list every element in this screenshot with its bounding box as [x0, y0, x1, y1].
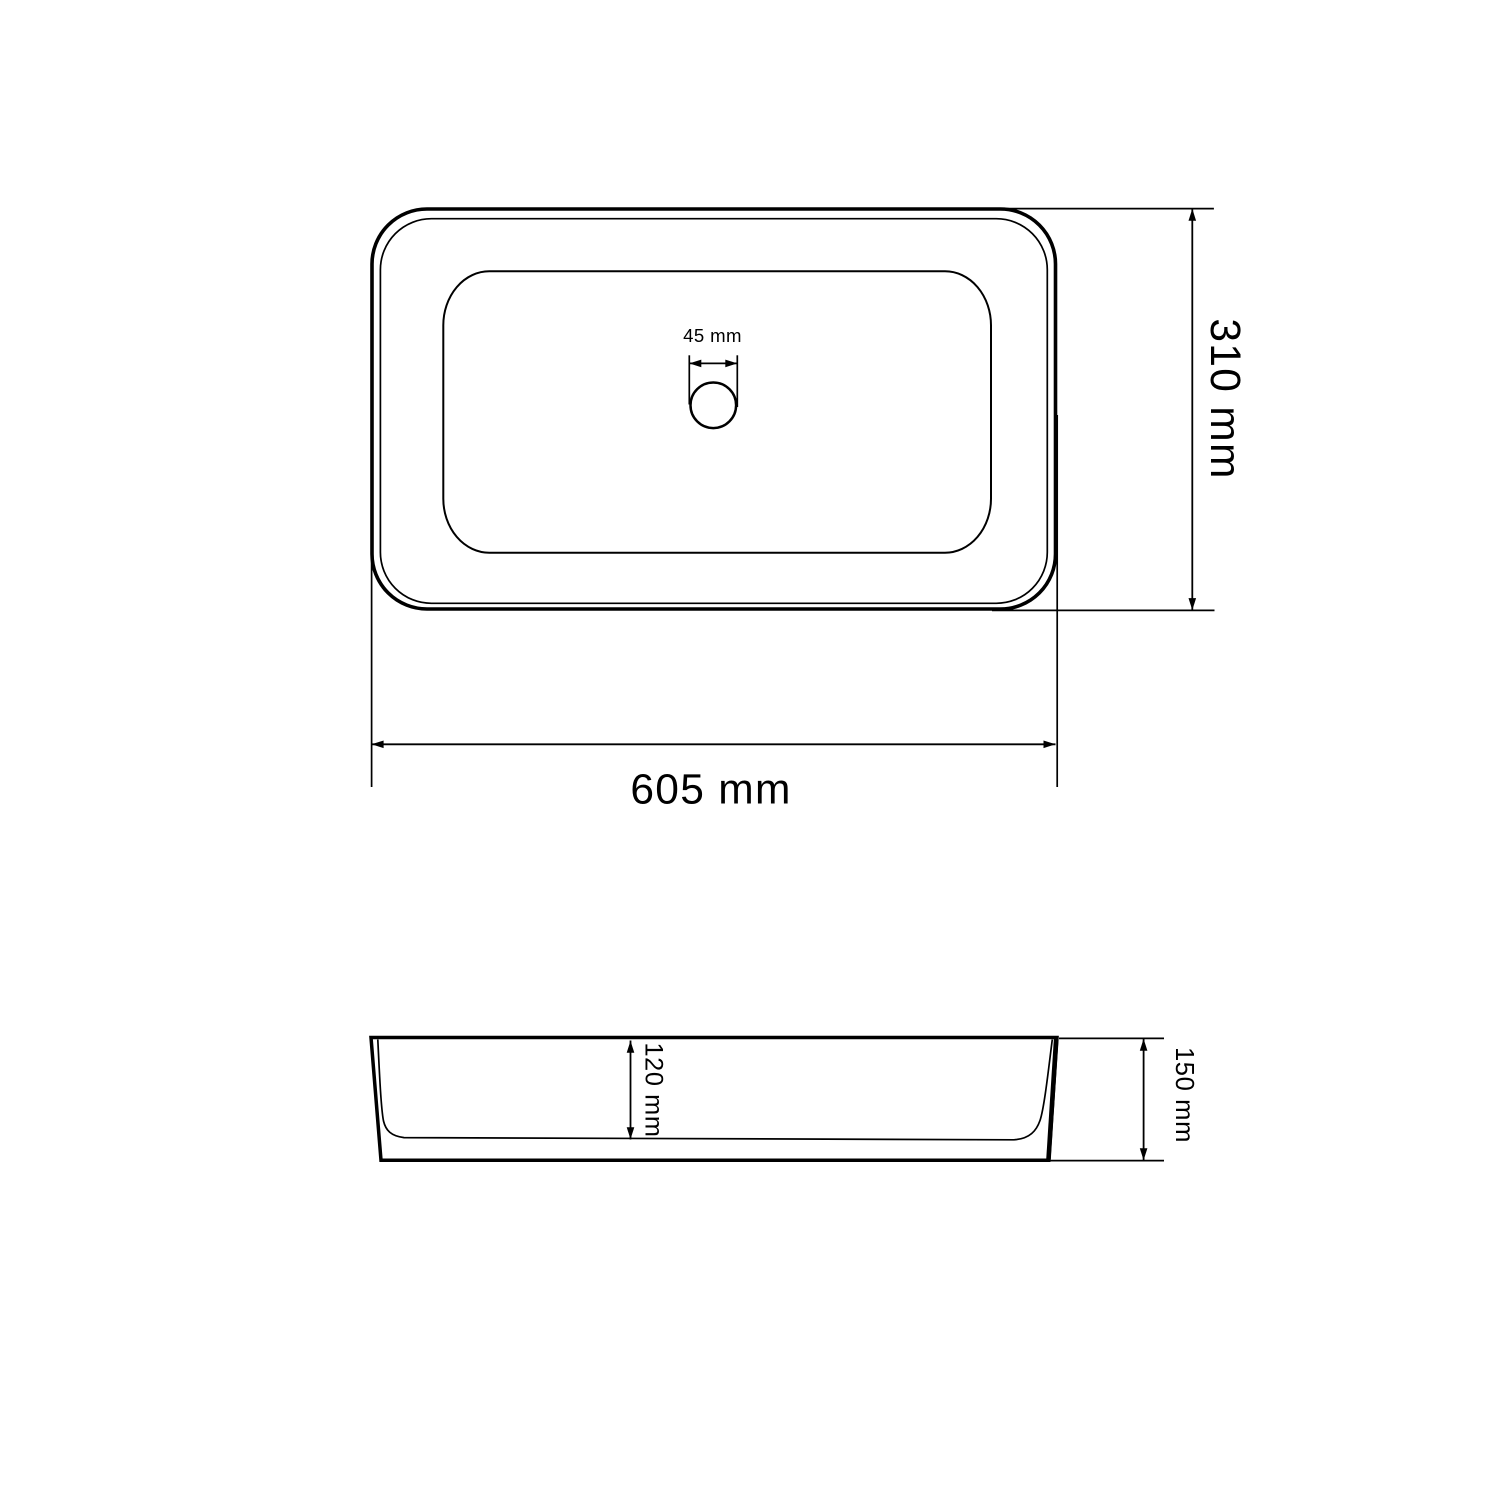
- svg-text:605 mm: 605 mm: [630, 767, 791, 814]
- svg-text:310 mm: 310 mm: [1201, 318, 1248, 479]
- svg-text:120 mm: 120 mm: [640, 1043, 668, 1138]
- svg-text:45 mm: 45 mm: [683, 325, 742, 346]
- svg-text:150 mm: 150 mm: [1170, 1047, 1198, 1143]
